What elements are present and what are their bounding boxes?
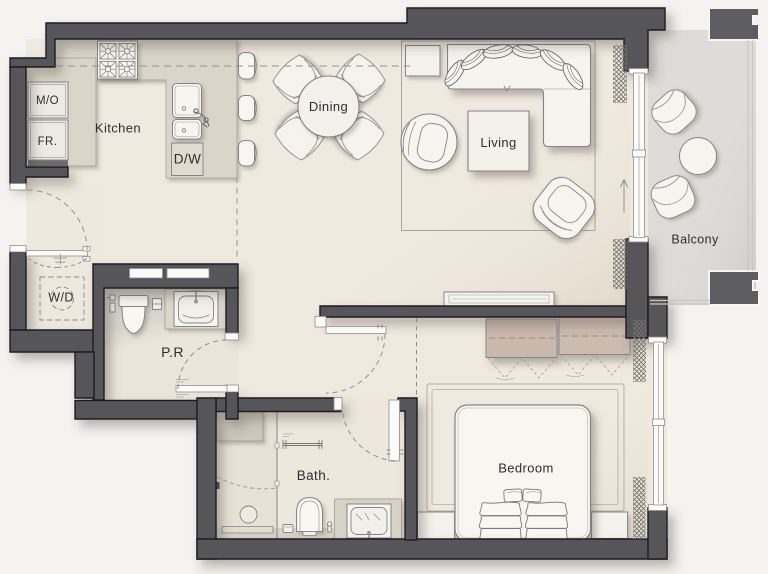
svg-text:FR.: FR.	[38, 136, 58, 148]
svg-text:Living: Living	[480, 135, 516, 150]
svg-text:Bath.: Bath.	[297, 468, 331, 483]
svg-text:M/O: M/O	[36, 95, 59, 107]
svg-text:Dining: Dining	[309, 99, 348, 114]
svg-text:W/D: W/D	[48, 291, 74, 305]
svg-text:Bedroom: Bedroom	[498, 461, 554, 476]
svg-text:Kitchen: Kitchen	[95, 121, 141, 136]
svg-text:D/W: D/W	[174, 152, 201, 167]
svg-text:Balcony: Balcony	[671, 233, 719, 247]
svg-text:P.R: P.R	[161, 344, 184, 360]
